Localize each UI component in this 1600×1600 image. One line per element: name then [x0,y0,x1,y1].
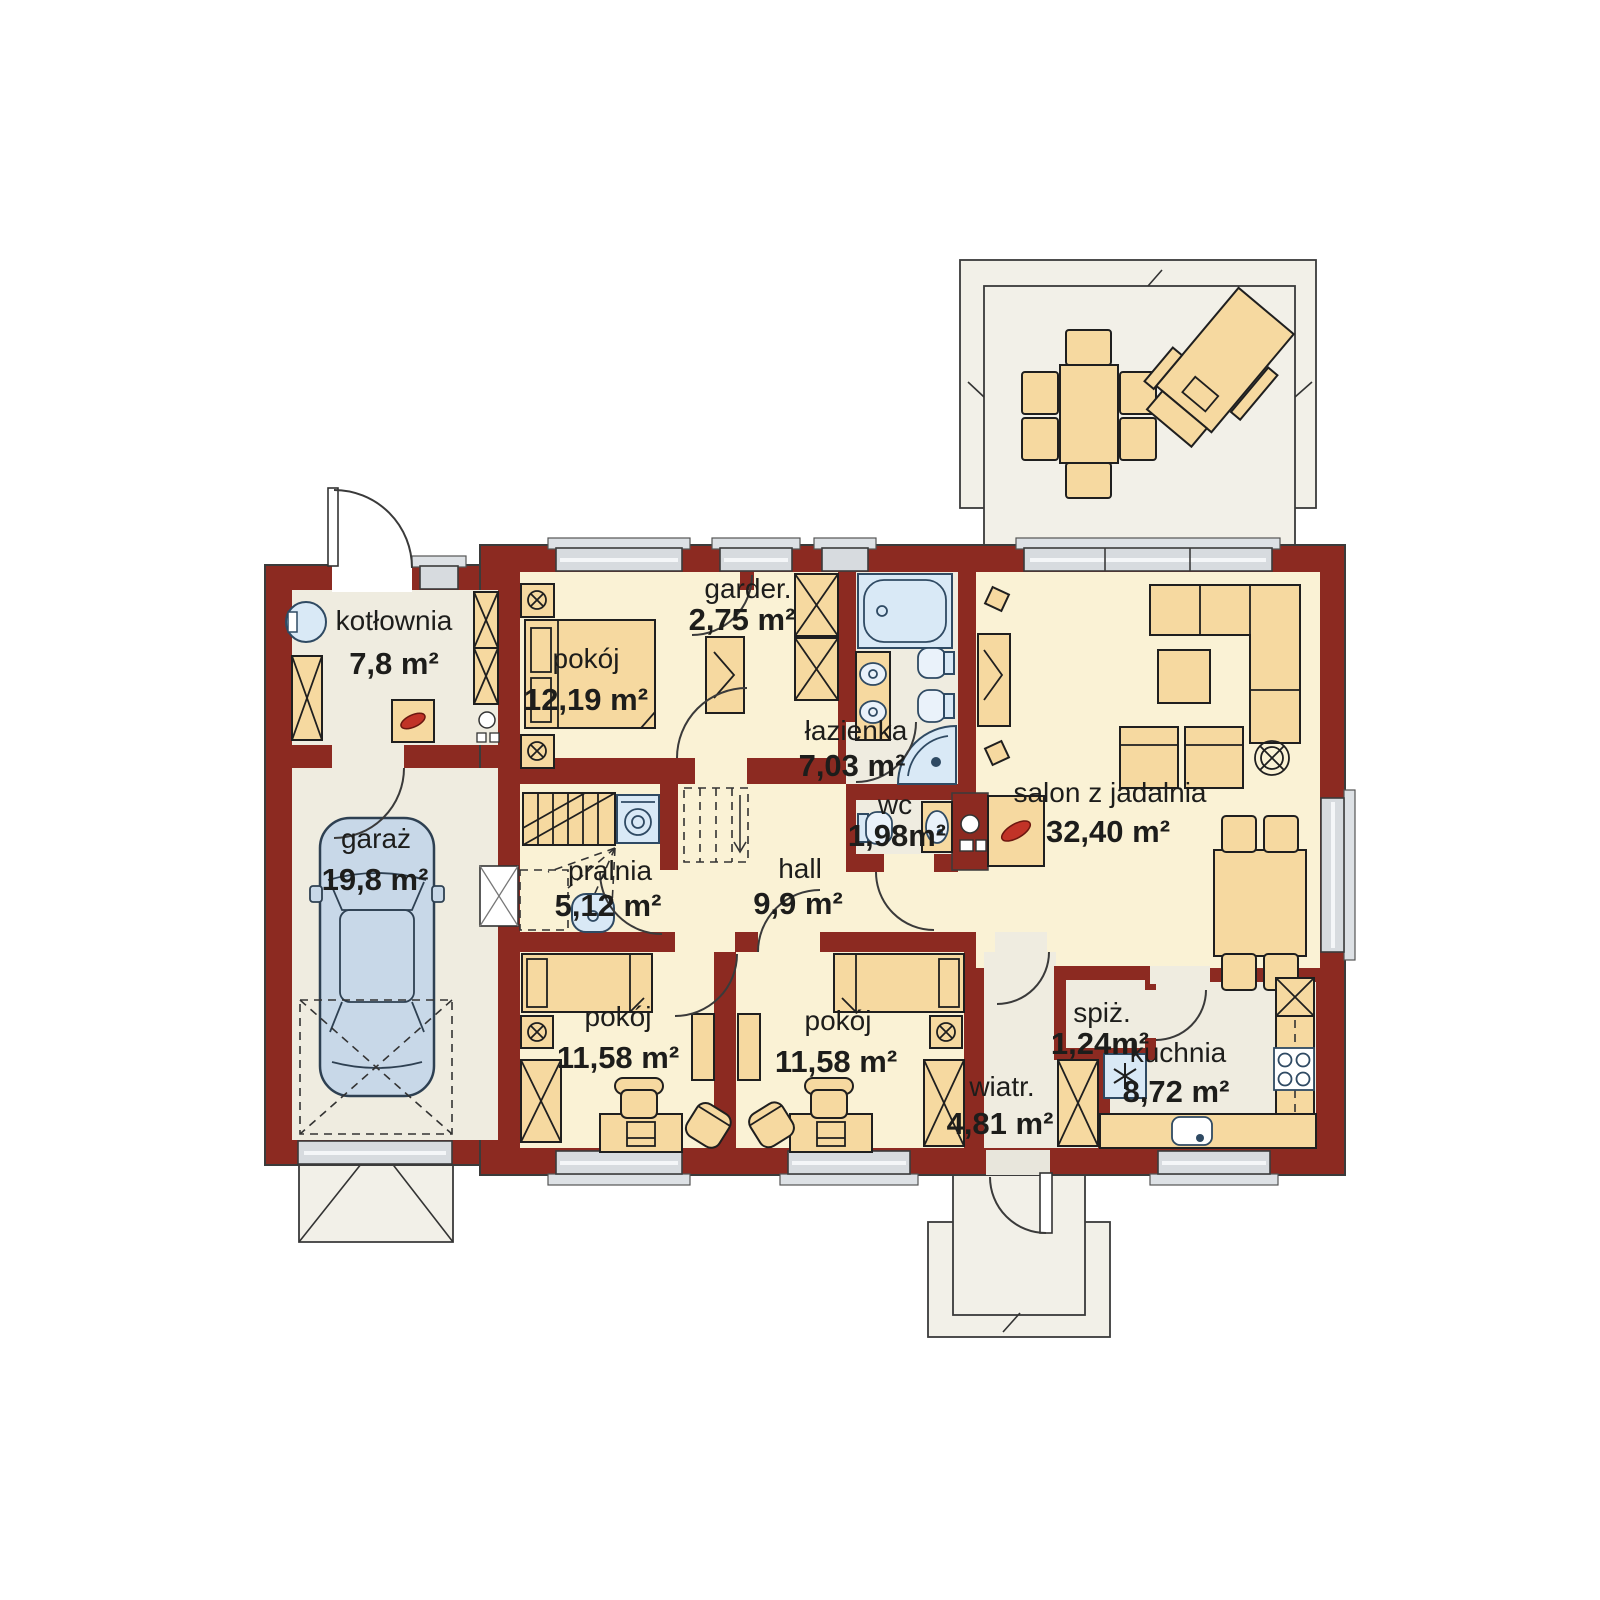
room-area-pokoj-3: 11,58 m² [775,1044,897,1079]
room-name-pokoj-3: pokój [805,1005,872,1036]
room-name-salon: salon z jadalnia [1013,777,1206,808]
dresser [692,1014,714,1080]
window-lazienka [822,548,868,571]
room-name-pokoj-2: pokój [585,1001,652,1032]
room-name-garaz: garaż [341,823,411,854]
room-name-garderoba: garder. [704,573,791,604]
floor-plan-drawing: kotłownia 7,8 m² pokój 12,19 m² garder. … [0,0,1600,1600]
dining-chair [1222,954,1256,990]
room-area-wc: 1,98m² [848,818,946,853]
room-name-hall: hall [778,853,822,884]
room-area-kuchnia: 8,72 m² [1123,1074,1230,1109]
room-name-pokoj-1: pokój [553,643,620,674]
room-name-spizarnia: spiż. [1073,997,1131,1028]
door-arc [334,490,412,568]
car [320,818,434,1096]
porch-platform [953,1175,1085,1315]
wc-door-opening [884,854,934,872]
room-area-pokoj-1: 12,19 m² [524,682,648,717]
single-bed [834,954,964,1012]
room-name-lazienka: łazienka [805,715,908,746]
room-name-kotlownia: kotłownia [336,605,453,636]
dresser [706,637,744,713]
bidet [918,648,946,678]
bathtub [858,574,952,648]
kotlownia-garaz-door-opening [332,745,404,768]
floor-plan-canvas: kotłownia 7,8 m² pokój 12,19 m² garder. … [0,0,1600,1600]
room-name-kuchnia: kuchnia [1130,1037,1227,1068]
office-chair [811,1090,847,1118]
room-area-wiatrolap: 4,81 m² [947,1106,1054,1141]
pokoj-2-door-opening [675,932,735,952]
room-area-garaz: 19,8 m² [322,862,429,897]
toilet [918,690,946,722]
dining-table [1214,850,1306,956]
room-name-pralnia: pralnia [568,855,652,886]
dining-chair [1264,816,1298,852]
room-area-hall: 9,9 m² [753,886,843,921]
room-name-wc: wc [877,789,912,820]
meter-icon [479,712,495,728]
terrace-chair [1022,418,1058,460]
kitchen-sink [1172,1117,1212,1145]
entry-porch [928,1175,1110,1337]
tv-sideboard [978,634,1010,726]
car-mirror [432,886,444,902]
room-name-wiatrolap: wiatr. [968,1071,1034,1102]
car-mirror [310,886,322,902]
pokoj-1-door-opening [695,758,747,784]
terrace-chair [1120,418,1156,460]
wiatrolap-door-opening [995,932,1047,952]
salon-kuchnia-passage [1150,966,1210,984]
terrace [960,260,1316,546]
room-area-salon: 32,40 m² [1046,814,1170,849]
room-area-pralnia: 5,12 m² [555,888,662,923]
pokoj-3-door-opening [758,932,820,952]
window-kotlownia [420,566,458,589]
wiatrolap-furniture [1058,1060,1098,1146]
kotlownia-exterior-door-opening [332,563,412,592]
front-door-leaf [1040,1173,1052,1233]
exterior-door-leaf [328,488,338,566]
pralnia-door-opening [660,870,678,932]
dining-chair [1222,816,1256,852]
room-area-pokoj-2: 11,58 m² [557,1040,679,1075]
dresser [738,1014,760,1080]
room-area-lazienka: 7,03 m² [799,748,906,783]
coffee-table [1158,650,1210,703]
washbasin [860,663,886,685]
room-area-kotlownia: 7,8 m² [349,646,439,681]
office-chair [621,1090,657,1118]
terrace-chair [1066,463,1111,498]
room-area-garderoba: 2,75 m² [689,602,796,637]
terrace-chair [1022,372,1058,414]
terrace-chair [1066,330,1111,365]
front-door-opening [986,1150,1050,1175]
